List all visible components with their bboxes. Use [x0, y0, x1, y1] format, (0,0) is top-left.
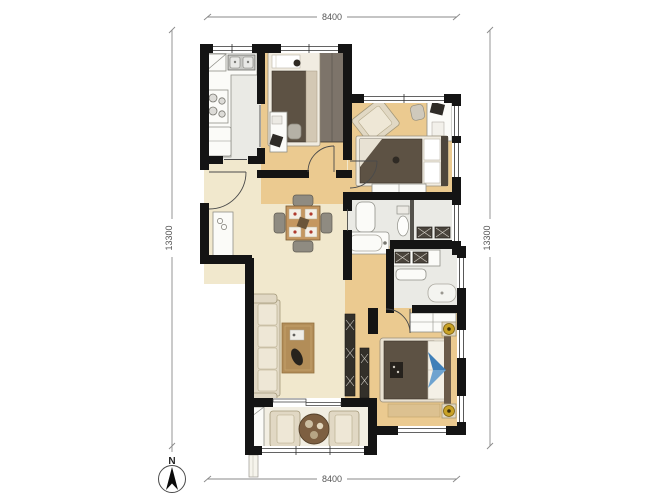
- table-plate-1: [305, 420, 313, 428]
- window-bedroom-top: [281, 44, 338, 53]
- wall-left-upper: [200, 44, 209, 170]
- wall-step-top: [343, 44, 352, 102]
- dim-left-label: 13300: [164, 225, 174, 250]
- table-plate-2: [317, 423, 323, 429]
- floor-plan-canvas: 8400 8400 13300 13300 N: [0, 0, 667, 500]
- dimension-top: 8400: [204, 10, 460, 23]
- dim-bottom-label: 8400: [322, 474, 342, 484]
- wall-left-lower: [245, 258, 254, 455]
- dining-chair-bottom: [293, 241, 313, 252]
- shower-tray: [356, 202, 375, 232]
- wall-bathroom-top: [343, 192, 455, 200]
- dimension-right: 13300: [482, 27, 497, 449]
- dimension-bottom: 8400: [204, 472, 460, 485]
- sink-drain-right: [247, 61, 249, 63]
- burner-4: [219, 111, 225, 117]
- downspout: [249, 455, 258, 477]
- window-balcony: [262, 446, 364, 455]
- window-kitchen: [213, 44, 252, 53]
- sofa-cushion-3: [258, 348, 277, 369]
- placemat-dot-1: [293, 212, 296, 215]
- bed-cushion-ball: [393, 157, 400, 164]
- window-bedroom-right-side-2: [452, 143, 461, 177]
- sofa-cushion-4: [258, 370, 277, 391]
- pillow-1: [424, 139, 440, 160]
- toilet-tank: [397, 206, 409, 214]
- shower-drain: [441, 292, 444, 295]
- window-master-bottom: [398, 426, 446, 435]
- wall-left-mid: [200, 203, 209, 264]
- balcony-round-table: [299, 414, 329, 444]
- bathtub-faucet: [383, 241, 387, 245]
- placemat-dot-3: [293, 230, 296, 233]
- fridge: [207, 127, 231, 156]
- tv-cabinet: [345, 314, 355, 396]
- window-bathroom: [452, 205, 461, 241]
- desk-paper: [272, 116, 282, 124]
- wall-living-bottom-left: [245, 398, 273, 407]
- window-master-side-1: [457, 330, 466, 358]
- wall-master-bath-left: [386, 249, 394, 311]
- bedroom-top: [268, 52, 344, 152]
- balcony-sliding-door: [273, 398, 341, 407]
- chair: [288, 124, 301, 139]
- lamp-bottom-center: [447, 409, 451, 413]
- placemat-dot-4: [309, 230, 312, 233]
- wall-bathroom-left-bottom: [343, 230, 352, 280]
- desk-papers: [432, 122, 444, 136]
- shoe-cabinet: [213, 212, 233, 256]
- burner-2: [219, 98, 225, 104]
- window-master-side-2: [457, 396, 466, 422]
- armchair-left-cushion: [277, 415, 294, 443]
- wall-bath-divider: [390, 240, 456, 249]
- hall-cabinet: [360, 348, 369, 398]
- cooktop: [206, 90, 228, 123]
- floor-plan-page: 8400 8400 13300 13300 N: [0, 0, 667, 500]
- tray-dot: [293, 334, 296, 337]
- wall-bedroom-top-bottom-right: [336, 170, 352, 178]
- pillow-2: [424, 162, 440, 183]
- dining-chair-left: [274, 213, 285, 233]
- shower-partition: [410, 198, 414, 240]
- dim-right-label: 13300: [482, 225, 492, 250]
- burner-3: [209, 107, 217, 115]
- tray-dot-1: [393, 366, 395, 368]
- headboard: [441, 136, 448, 186]
- dim-top-label: 8400: [322, 12, 342, 22]
- coffee-tray: [290, 330, 304, 340]
- lamp-top-center: [447, 327, 451, 331]
- sofa-cushion-2: [258, 326, 277, 347]
- sofa-cushion-1: [258, 304, 277, 325]
- compass: N: [159, 444, 186, 493]
- wall-kitchen-bottom-right: [248, 156, 262, 164]
- wall-bedroom-top-bottom-left: [257, 170, 309, 178]
- bed-tray-dark: [390, 362, 403, 378]
- bed-cushion-ball: [294, 60, 301, 67]
- burner-1: [209, 94, 217, 102]
- dining-chair-top: [293, 195, 313, 206]
- armchair-right-cushion: [335, 415, 352, 443]
- placemat-dot-2: [309, 212, 312, 215]
- table-plate-3: [310, 431, 318, 439]
- wall-bedroom-right-left: [343, 102, 352, 160]
- wall-kitchen-bottom-left: [205, 156, 223, 164]
- bed-foot-rug: [388, 404, 440, 417]
- wall-kitchen-right-top: [257, 44, 265, 104]
- window-bedroom-right-top: [364, 94, 444, 103]
- bath-bench: [396, 269, 426, 280]
- dining-chair-right: [321, 213, 332, 233]
- window-bedroom-right-side-1: [452, 106, 461, 136]
- sofa-armrest-top: [251, 294, 277, 303]
- wall-master-bath-bottom-right: [412, 305, 462, 313]
- dimension-left: 13300: [164, 27, 179, 449]
- sink-drain-left: [234, 61, 236, 63]
- wall-master-left-stub: [368, 308, 378, 334]
- bed-fold: [306, 71, 317, 142]
- window-master-bath: [457, 258, 466, 288]
- toilet-bowl: [398, 216, 409, 236]
- wall-living-bottom-right: [341, 398, 377, 407]
- tray-dot-2: [397, 371, 399, 373]
